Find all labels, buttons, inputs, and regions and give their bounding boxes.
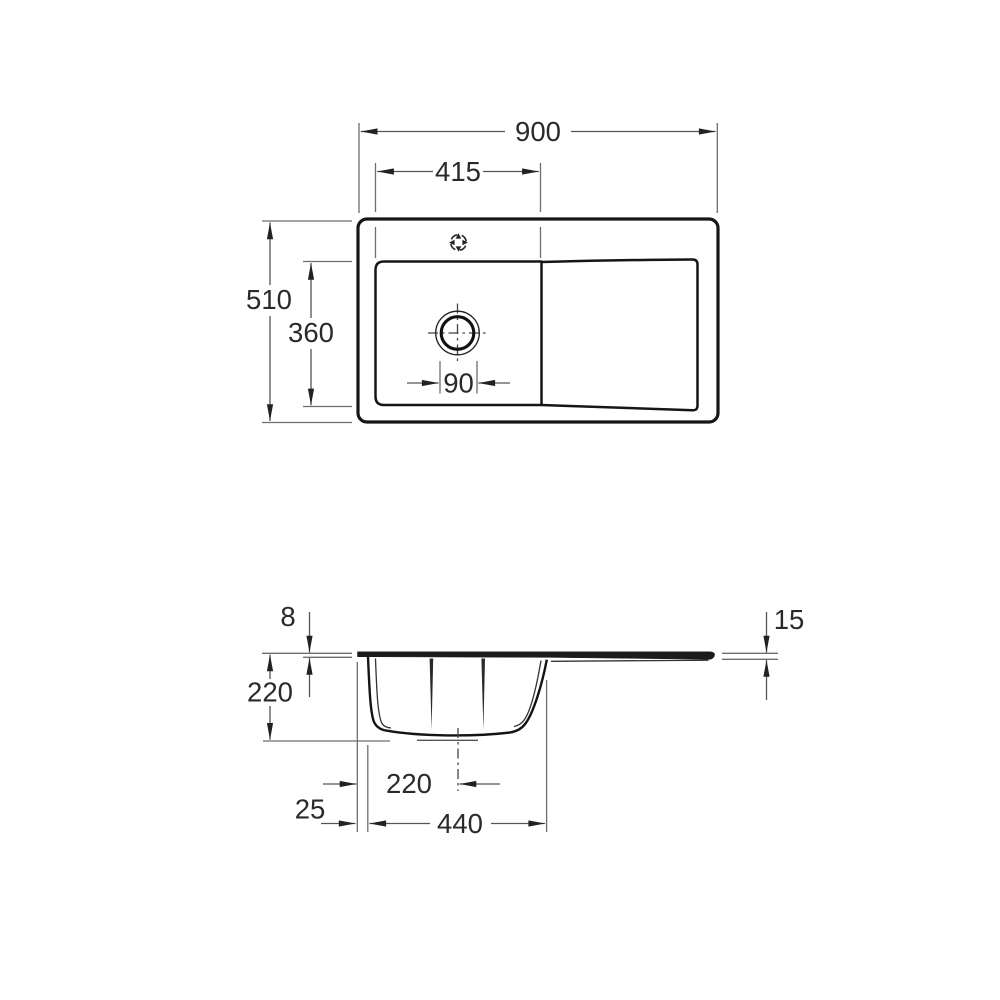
countertop-rim-profile <box>358 652 715 660</box>
dimension-label: 360 <box>288 317 334 348</box>
sink-technical-drawing: 900 415 510 360 <box>0 0 1000 1000</box>
drainboard-outline <box>542 260 698 411</box>
dimension-label: 8 <box>280 601 295 632</box>
dimension-label: 510 <box>246 284 292 315</box>
dimension-label: 90 <box>443 368 474 399</box>
dim-edge-to-bowl: 25 <box>295 794 356 825</box>
dim-bowl-depth: 360 <box>288 262 352 407</box>
faucet-tick-n <box>456 233 462 238</box>
side-view: 8 220 15 220 25 <box>247 601 804 839</box>
dim-edge-to-divider: 415 <box>376 156 541 258</box>
dim-bowl-width: 440 <box>369 808 545 839</box>
dimension-label: 25 <box>295 794 326 825</box>
dimension-label: 220 <box>247 677 293 708</box>
dimension-label: 415 <box>435 156 481 187</box>
faucet-hole-mark <box>448 232 469 253</box>
dimension-label: 900 <box>515 116 561 147</box>
dim-drain-offset: 220 <box>323 768 500 799</box>
dimension-label: 220 <box>386 768 432 799</box>
dim-edge-thickness: 15 <box>722 604 804 700</box>
dimension-label: 440 <box>437 808 483 839</box>
dim-drain-diameter: 90 <box>407 361 510 399</box>
dimension-label: 15 <box>774 604 805 635</box>
bowl-wall-inner-right <box>514 661 541 727</box>
bowl-contour-line <box>430 659 434 731</box>
faucet-tick-s <box>456 246 462 251</box>
faucet-tick-e <box>462 240 467 246</box>
bowl-contour-line <box>481 659 485 731</box>
technical-drawing-page: 900 415 510 360 <box>0 0 1000 1000</box>
sink-outer-outline <box>358 219 718 422</box>
faucet-tick-w <box>449 240 454 246</box>
dim-overall-width: 900 <box>359 116 717 213</box>
top-view: 900 415 510 360 <box>246 116 718 423</box>
bowl-wall-inner-left <box>376 659 392 729</box>
drainboard-underside-line <box>551 660 709 661</box>
drain-mark <box>428 304 487 363</box>
